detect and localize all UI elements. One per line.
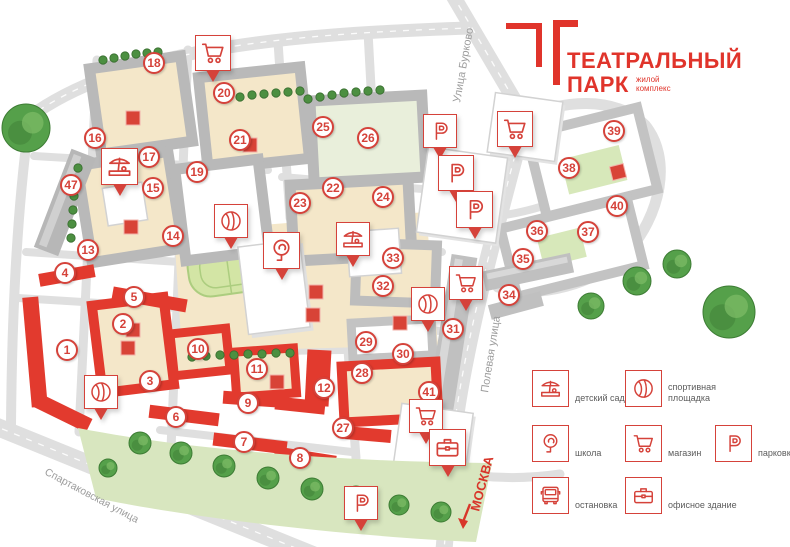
building-number-marker[interactable]: 17: [138, 146, 160, 168]
sport-icon: [625, 370, 662, 407]
legend-item-shop-cart: магазин: [625, 425, 701, 462]
shop-cart-icon: [449, 266, 483, 300]
building-number-marker[interactable]: 15: [142, 177, 164, 199]
building-number-marker[interactable]: 28: [351, 362, 373, 384]
school-icon: [532, 425, 569, 462]
map-pin-kindergarten-icon[interactable]: [101, 148, 138, 197]
legend-label: парковка: [758, 425, 790, 462]
building-number-marker[interactable]: 36: [526, 220, 548, 242]
parking-icon: [456, 191, 493, 228]
kindergarten-icon: [336, 222, 370, 256]
map-pin-shop-cart-icon[interactable]: [497, 111, 533, 159]
pin-tail: [275, 268, 289, 280]
pin-tail: [508, 146, 522, 158]
parking-icon: [438, 155, 474, 191]
building-number-marker[interactable]: 40: [606, 195, 628, 217]
building-number-marker[interactable]: 22: [322, 177, 344, 199]
map-pin-sport-icon[interactable]: [411, 287, 445, 333]
legend-item-kindergarten: детский сад: [532, 370, 625, 407]
logo-subtitle: жилой комплекс: [636, 76, 671, 93]
map-pin-shop-cart-icon[interactable]: [195, 35, 231, 83]
pin-tail: [206, 70, 220, 82]
legend-item-bus: остановка: [532, 477, 617, 514]
legend-label: остановка: [575, 477, 617, 514]
pin-tail: [354, 519, 368, 531]
building-number-marker[interactable]: 32: [372, 275, 394, 297]
map-pin-parking-icon[interactable]: [456, 191, 493, 240]
building-number-marker[interactable]: 12: [313, 377, 335, 399]
building-number-marker[interactable]: 20: [213, 82, 235, 104]
kindergarten-icon: [532, 370, 569, 407]
building-number-marker[interactable]: 16: [84, 127, 106, 149]
map-pin-sport-icon[interactable]: [214, 204, 248, 250]
building-number-marker[interactable]: 2: [112, 313, 134, 335]
legend-label: детский сад: [575, 370, 625, 407]
legend-label: магазин: [668, 425, 701, 462]
map-pin-parking-icon[interactable]: [344, 486, 378, 532]
shop-cart-icon: [195, 35, 231, 71]
pin-tail: [441, 465, 455, 477]
building-number-marker[interactable]: 38: [558, 157, 580, 179]
pin-tail: [346, 255, 360, 267]
sport-icon: [411, 287, 445, 321]
building-number-marker[interactable]: 5: [123, 286, 145, 308]
building-number-marker[interactable]: 47: [60, 174, 82, 196]
building-number-marker[interactable]: 21: [229, 129, 251, 151]
pin-tail: [94, 408, 108, 420]
building-number-marker[interactable]: 8: [289, 447, 311, 469]
building-number-marker[interactable]: 27: [332, 417, 354, 439]
building-number-marker[interactable]: 18: [143, 52, 165, 74]
building-number-marker[interactable]: 37: [577, 221, 599, 243]
building-number-marker[interactable]: 29: [355, 331, 377, 353]
office-icon: [625, 477, 662, 514]
parking-icon: [715, 425, 752, 462]
building-number-marker[interactable]: 3: [139, 370, 161, 392]
parking-icon: [423, 114, 457, 148]
building-number-marker[interactable]: 4: [54, 262, 76, 284]
building-number-marker[interactable]: 31: [442, 318, 464, 340]
legend-label: спортивная площадка: [668, 370, 716, 407]
pin-tail: [421, 320, 435, 332]
building-number-marker[interactable]: 30: [392, 343, 414, 365]
pin-tail: [113, 184, 127, 196]
bus-icon: [532, 477, 569, 514]
building-number-marker[interactable]: 35: [512, 248, 534, 270]
shop-cart-icon: [497, 111, 533, 147]
legend-label: офисное здание: [668, 477, 737, 514]
building-number-marker[interactable]: 10: [187, 338, 209, 360]
pin-tail: [459, 299, 473, 311]
building-number-marker[interactable]: 26: [357, 127, 379, 149]
legend-item-parking: парковка: [715, 425, 790, 462]
map-pin-office-icon[interactable]: [429, 429, 466, 478]
building-number-marker[interactable]: 1: [56, 339, 78, 361]
sport-icon: [84, 375, 118, 409]
building-number-marker[interactable]: 19: [186, 161, 208, 183]
building-number-marker[interactable]: 39: [603, 120, 625, 142]
building-number-marker[interactable]: 9: [237, 392, 259, 414]
building-number-marker[interactable]: 24: [372, 186, 394, 208]
building-number-marker[interactable]: 11: [246, 358, 268, 380]
kindergarten-icon: [101, 148, 138, 185]
building-number-marker[interactable]: 14: [162, 225, 184, 247]
parking-icon: [344, 486, 378, 520]
building-number-marker[interactable]: 7: [233, 431, 255, 453]
building-number-marker[interactable]: 6: [165, 406, 187, 428]
school-icon: [263, 232, 300, 269]
building-number-marker[interactable]: 33: [382, 247, 404, 269]
building-number-marker[interactable]: 13: [77, 239, 99, 261]
map-pin-school-icon[interactable]: [263, 232, 300, 281]
sport-icon: [214, 204, 248, 238]
shop-cart-icon: [409, 399, 443, 433]
logo-title-2: ПАРК: [567, 72, 629, 98]
map-pin-kindergarten-icon[interactable]: [336, 222, 370, 268]
shop-cart-icon: [625, 425, 662, 462]
map-pin-parking-icon[interactable]: [423, 114, 457, 160]
building-number-marker[interactable]: 23: [289, 192, 311, 214]
office-icon: [429, 429, 466, 466]
map-pin-sport-icon[interactable]: [84, 375, 118, 421]
legend-item-sport: спортивная площадка: [625, 370, 716, 407]
pin-tail: [224, 237, 238, 249]
building-number-marker[interactable]: 25: [312, 116, 334, 138]
legend-label: школа: [575, 425, 601, 462]
legend-item-office: офисное здание: [625, 477, 737, 514]
logo: ТЕАТРАЛЬНЫЙ ПАРК жилой комплекс: [505, 18, 775, 103]
building-number-marker[interactable]: 34: [498, 284, 520, 306]
logo-title: ТЕАТРАЛЬНЫЙ: [567, 48, 742, 74]
genplan-poster: Улица Бурково Полевая улица Спартаковска…: [0, 0, 790, 547]
pin-tail: [468, 227, 482, 239]
map-pin-shop-cart-icon[interactable]: [449, 266, 483, 312]
legend-item-school: школа: [532, 425, 601, 462]
